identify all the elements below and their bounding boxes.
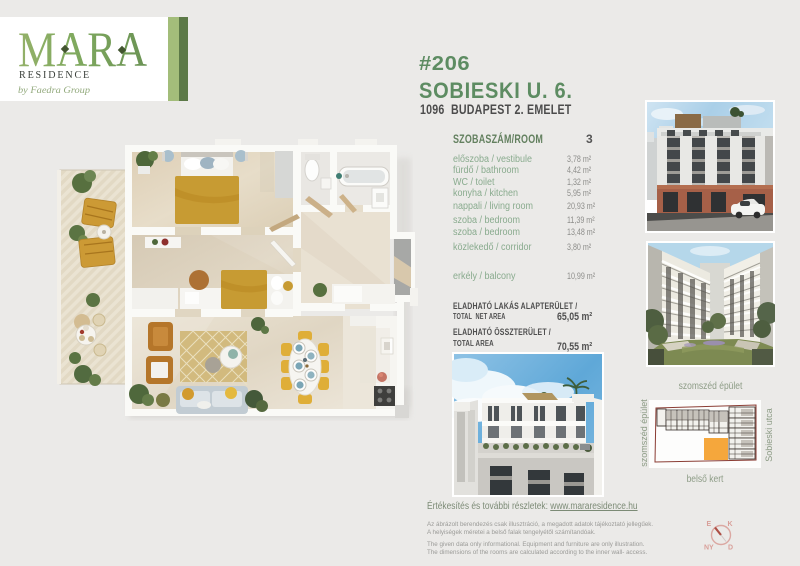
svg-text:E: E [707, 521, 712, 528]
svg-text:RESIDENCE: RESIDENCE [19, 69, 91, 81]
svg-text:K: K [728, 521, 733, 528]
svg-text:D: D [728, 545, 733, 552]
svg-text:by Faedra Group: by Faedra Group [18, 86, 90, 96]
svg-text:NY: NY [704, 545, 714, 552]
